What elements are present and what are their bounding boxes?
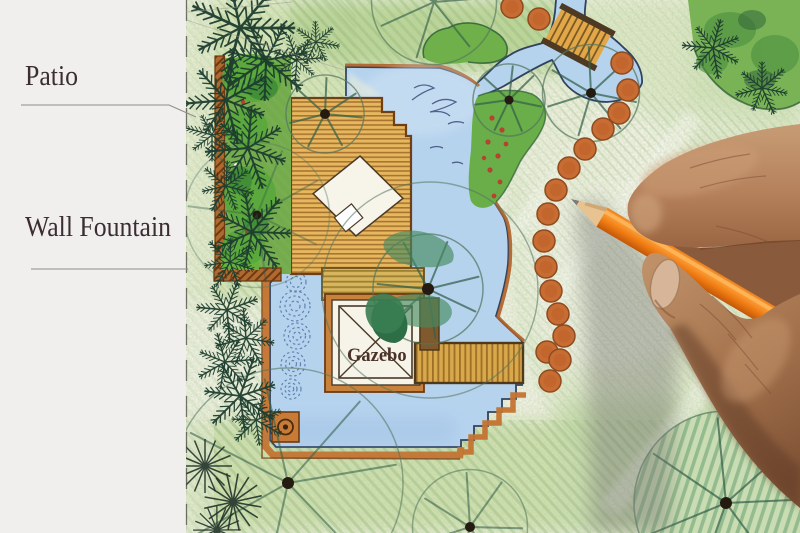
svg-text:Gazebo: Gazebo [347, 346, 407, 366]
svg-text:Patio: Patio [25, 61, 78, 92]
svg-text:Wall Fountain: Wall Fountain [25, 212, 171, 243]
